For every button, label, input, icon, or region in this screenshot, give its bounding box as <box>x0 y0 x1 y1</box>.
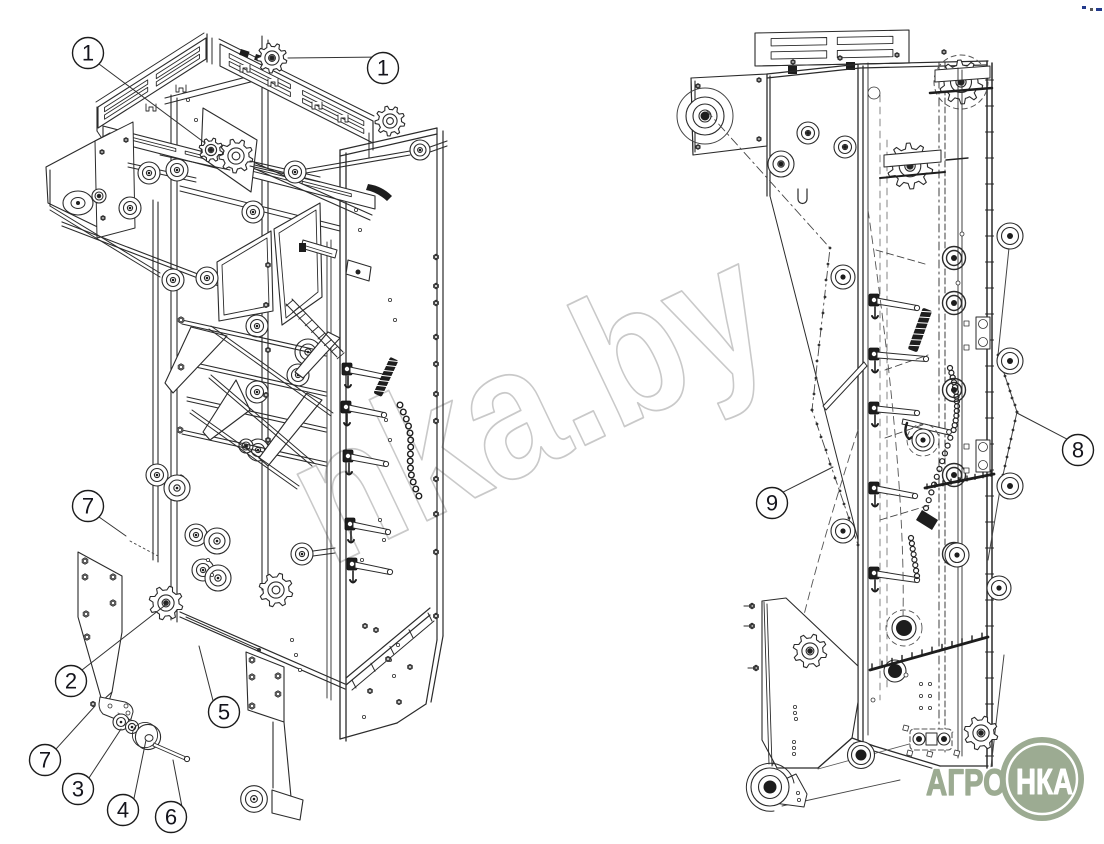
svg-text:5: 5 <box>218 700 230 725</box>
svg-text:1: 1 <box>377 56 389 81</box>
svg-text:НКА: НКА <box>1016 761 1073 802</box>
svg-text:4: 4 <box>117 798 129 823</box>
svg-text:8: 8 <box>1072 438 1084 463</box>
svg-text:АГРО: АГРО <box>926 762 1006 803</box>
svg-text:7: 7 <box>82 494 94 519</box>
svg-text:2: 2 <box>65 669 77 694</box>
svg-text:1: 1 <box>82 41 94 66</box>
svg-text:9: 9 <box>766 491 778 516</box>
svg-text:6: 6 <box>165 805 177 830</box>
svg-text:3: 3 <box>72 777 84 802</box>
svg-text:7: 7 <box>39 748 51 773</box>
